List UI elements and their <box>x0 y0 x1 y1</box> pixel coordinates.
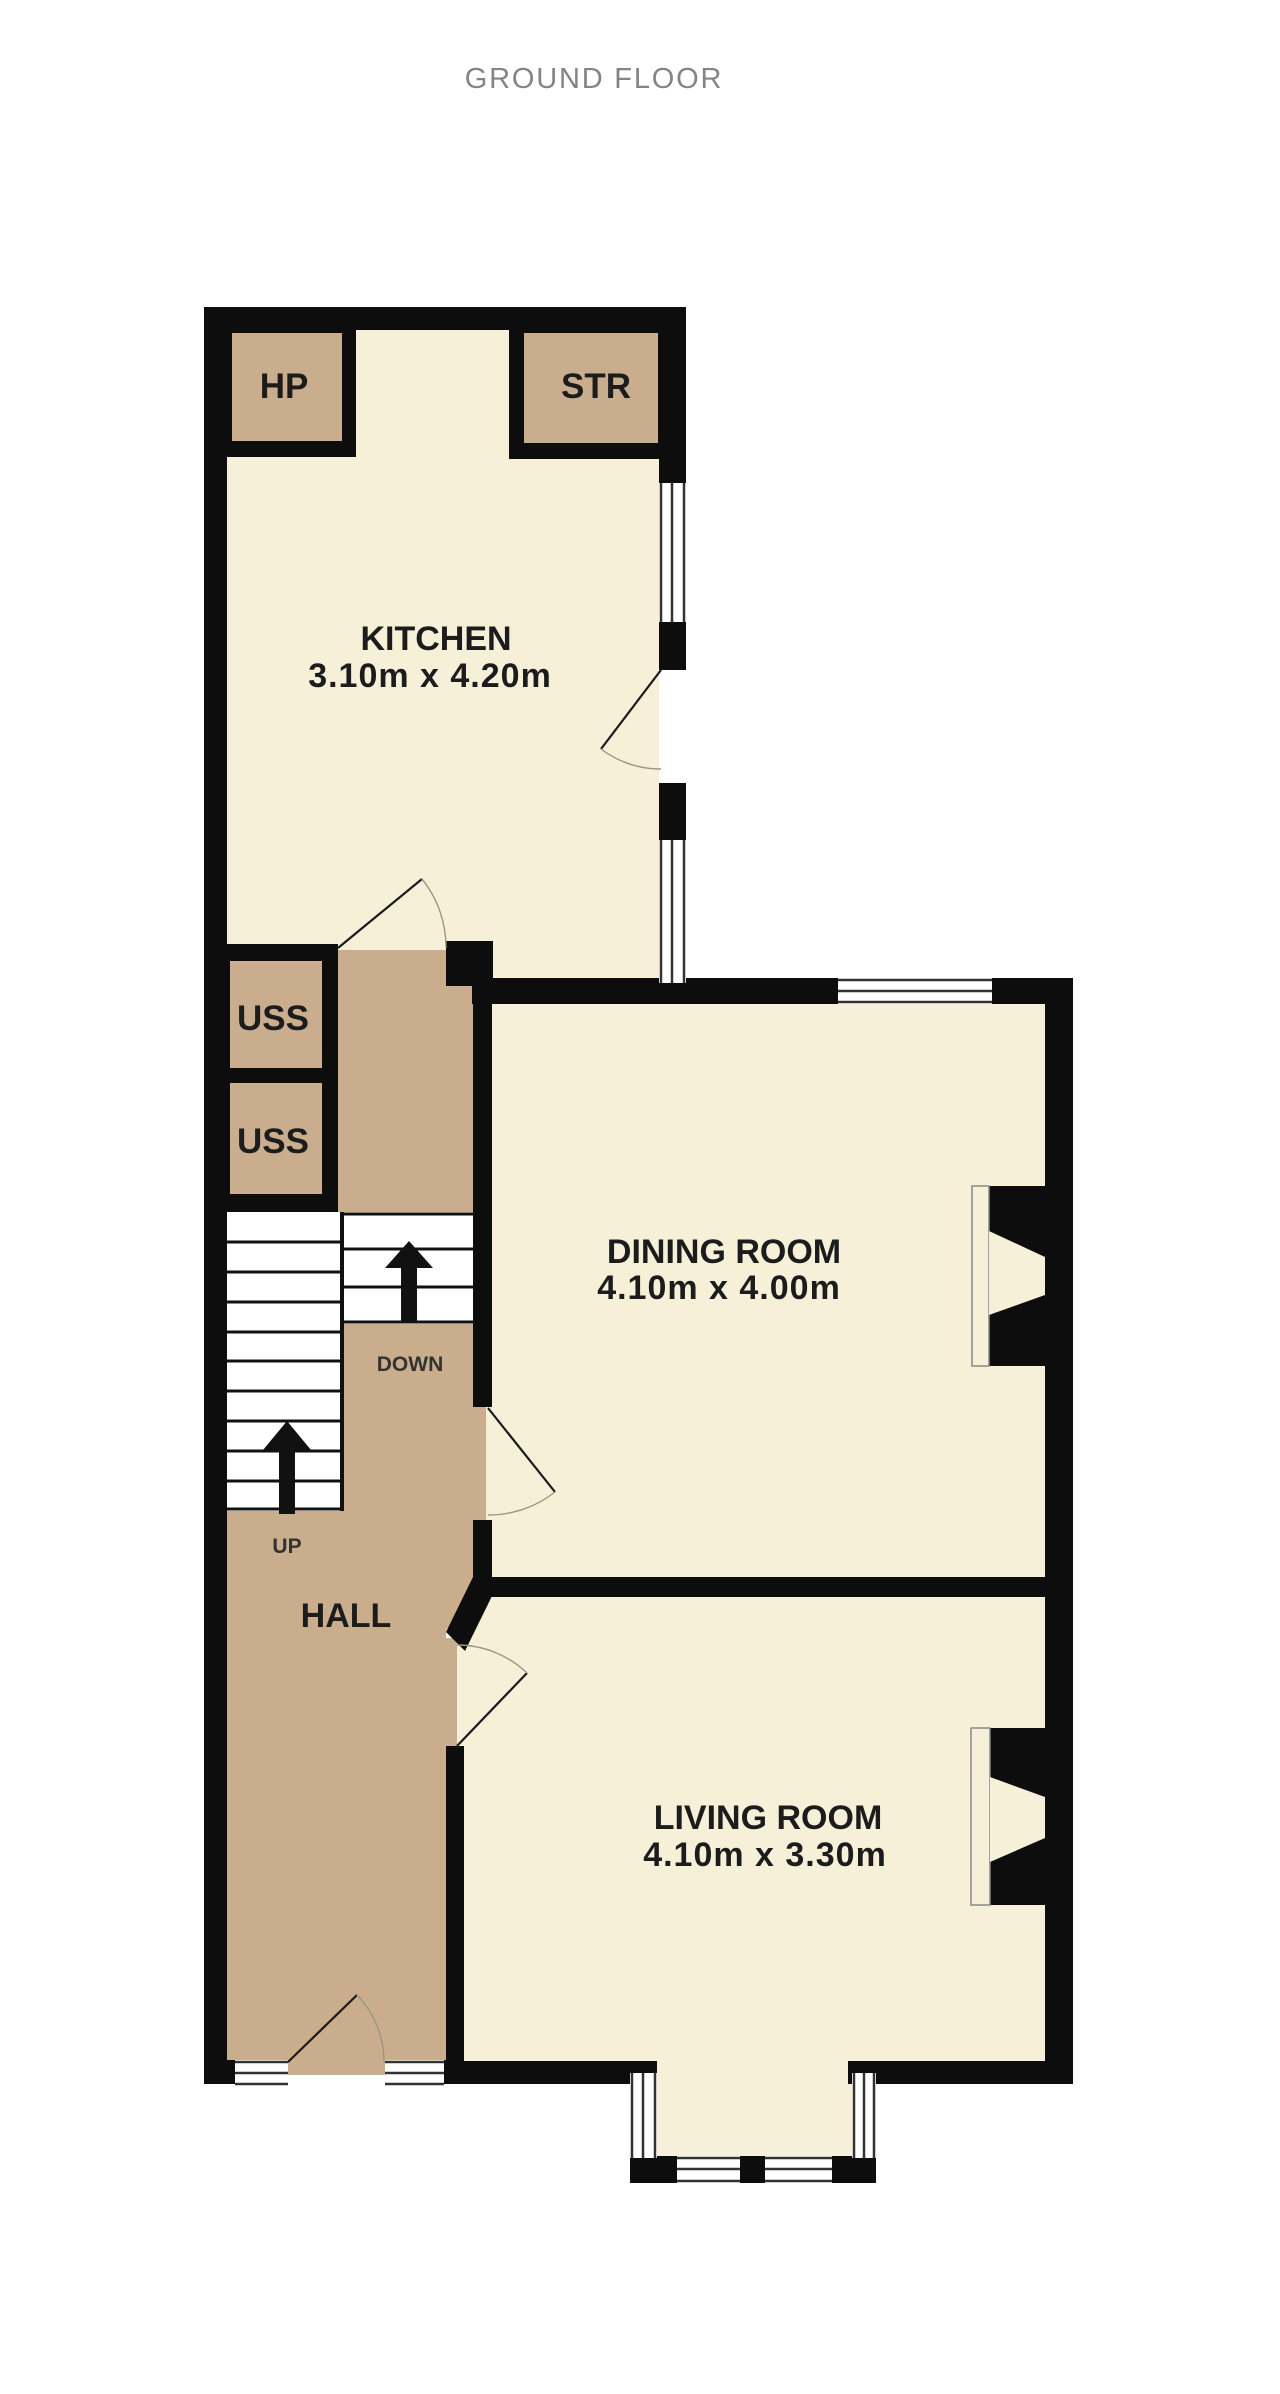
svg-text:HP: HP <box>260 367 309 406</box>
svg-text:GROUND FLOOR: GROUND FLOOR <box>465 63 723 95</box>
svg-text:UP: UP <box>272 1535 301 1558</box>
svg-text:LIVING ROOM: LIVING ROOM <box>654 1799 883 1837</box>
svg-text:DINING ROOM: DINING ROOM <box>607 1233 841 1271</box>
svg-text:KITCHEN: KITCHEN <box>360 620 511 658</box>
svg-text:4.10m x 4.00m: 4.10m x 4.00m <box>597 1269 841 1307</box>
svg-text:3.10m x 4.20m: 3.10m x 4.20m <box>308 657 552 695</box>
svg-text:DOWN: DOWN <box>377 1353 444 1376</box>
svg-text:USS: USS <box>237 999 309 1038</box>
svg-text:STR: STR <box>561 367 631 406</box>
svg-text:HALL: HALL <box>301 1597 392 1635</box>
svg-text:USS: USS <box>237 1122 309 1161</box>
svg-text:4.10m x 3.30m: 4.10m x 3.30m <box>643 1836 887 1874</box>
